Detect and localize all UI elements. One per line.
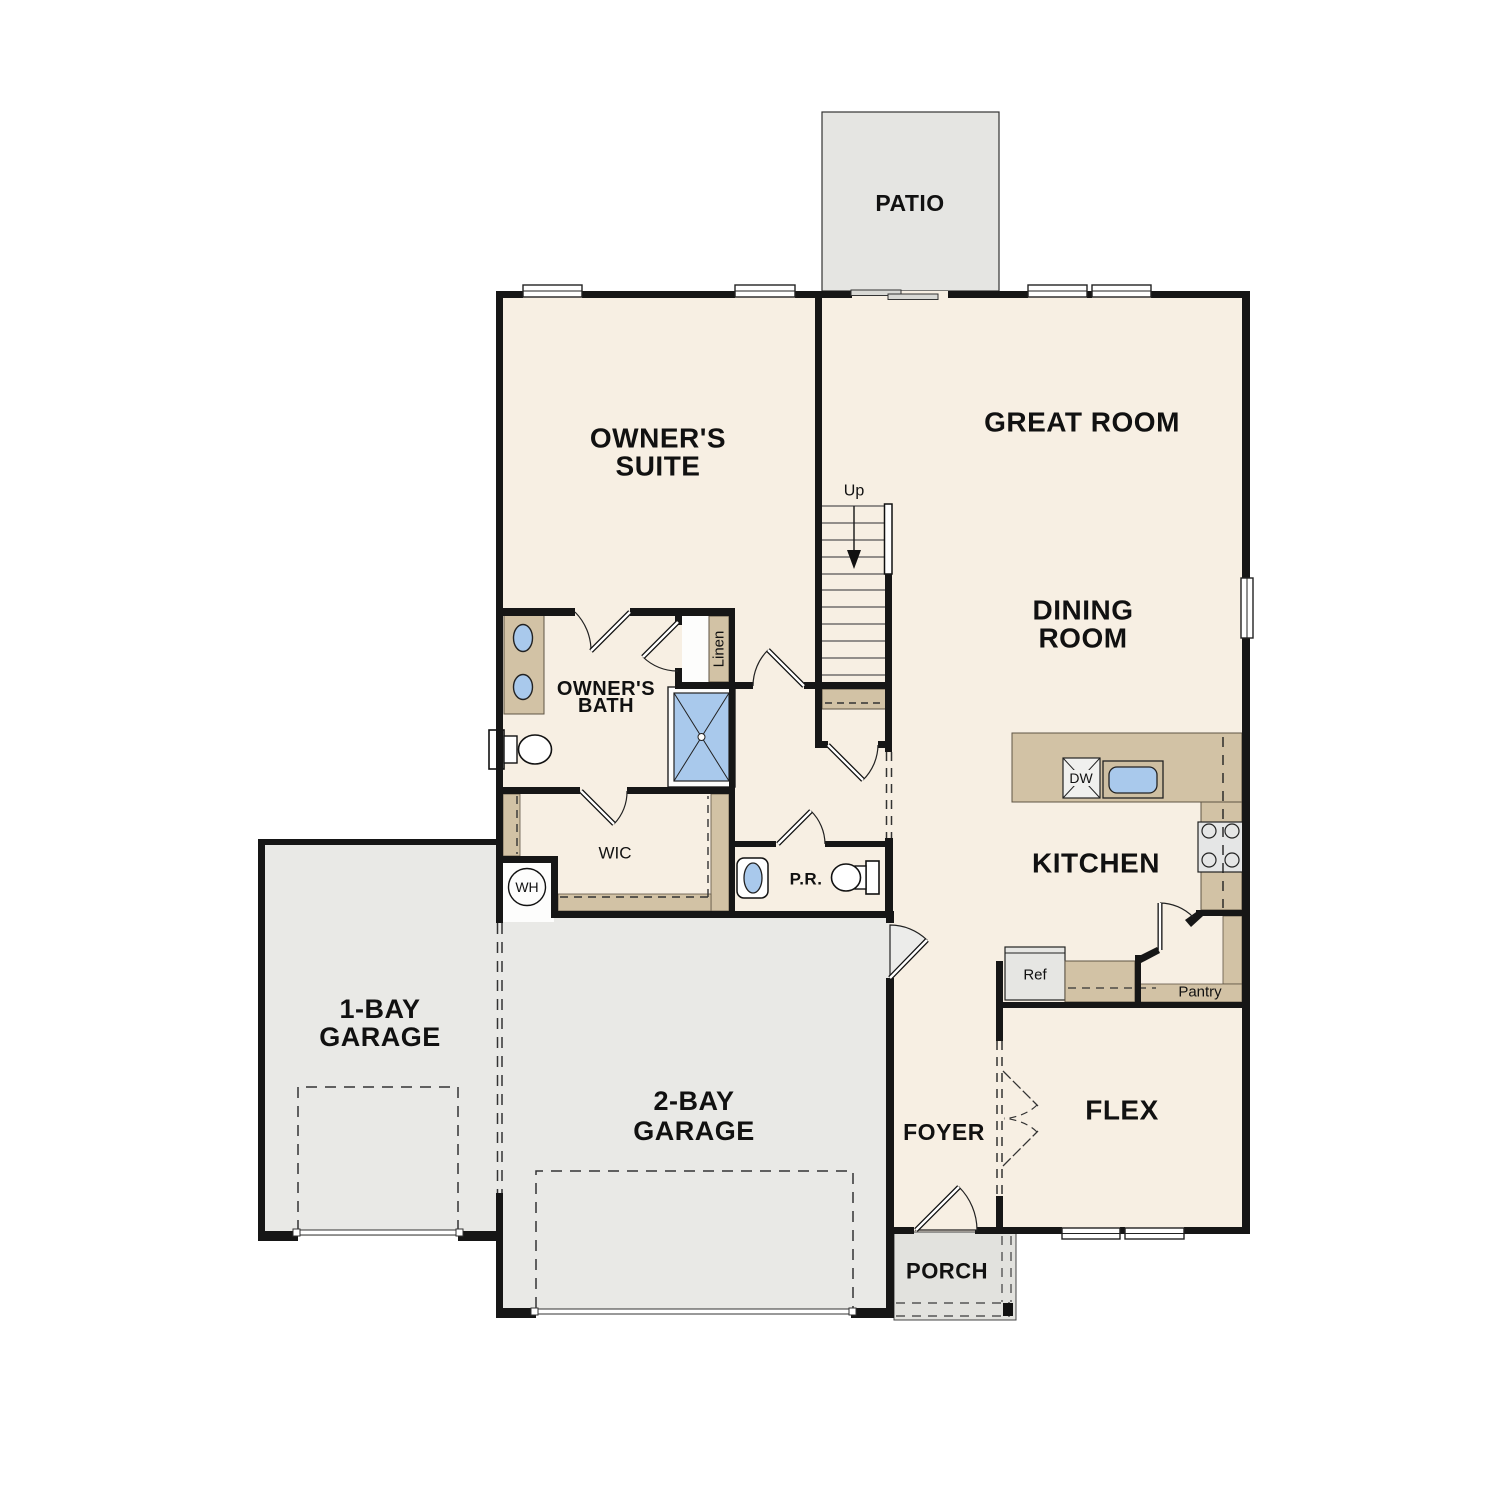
svg-text:Up: Up xyxy=(844,483,865,500)
svg-text:GREAT ROOM: GREAT ROOM xyxy=(984,407,1180,438)
svg-text:OWNER'S: OWNER'S xyxy=(590,423,726,454)
svg-text:P.R.: P.R. xyxy=(790,870,823,889)
svg-text:DINING: DINING xyxy=(1033,595,1134,626)
svg-text:Pantry: Pantry xyxy=(1178,984,1222,1001)
svg-text:GARAGE: GARAGE xyxy=(633,1116,755,1146)
svg-text:DW: DW xyxy=(1069,770,1093,786)
svg-text:PORCH: PORCH xyxy=(906,1259,988,1284)
svg-text:GARAGE: GARAGE xyxy=(319,1022,441,1052)
svg-text:Ref: Ref xyxy=(1023,967,1047,984)
svg-text:WIC: WIC xyxy=(598,844,631,863)
svg-text:BATH: BATH xyxy=(578,695,634,717)
svg-text:WH: WH xyxy=(515,879,538,895)
svg-text:SUITE: SUITE xyxy=(616,451,701,482)
svg-text:Linen: Linen xyxy=(711,631,728,668)
svg-text:FLEX: FLEX xyxy=(1085,1095,1159,1126)
svg-text:ROOM: ROOM xyxy=(1038,623,1127,654)
svg-text:2-BAY: 2-BAY xyxy=(653,1086,734,1116)
svg-text:PATIO: PATIO xyxy=(875,190,944,216)
svg-text:KITCHEN: KITCHEN xyxy=(1032,848,1160,879)
svg-text:1-BAY: 1-BAY xyxy=(339,994,420,1024)
svg-text:FOYER: FOYER xyxy=(903,1119,985,1145)
